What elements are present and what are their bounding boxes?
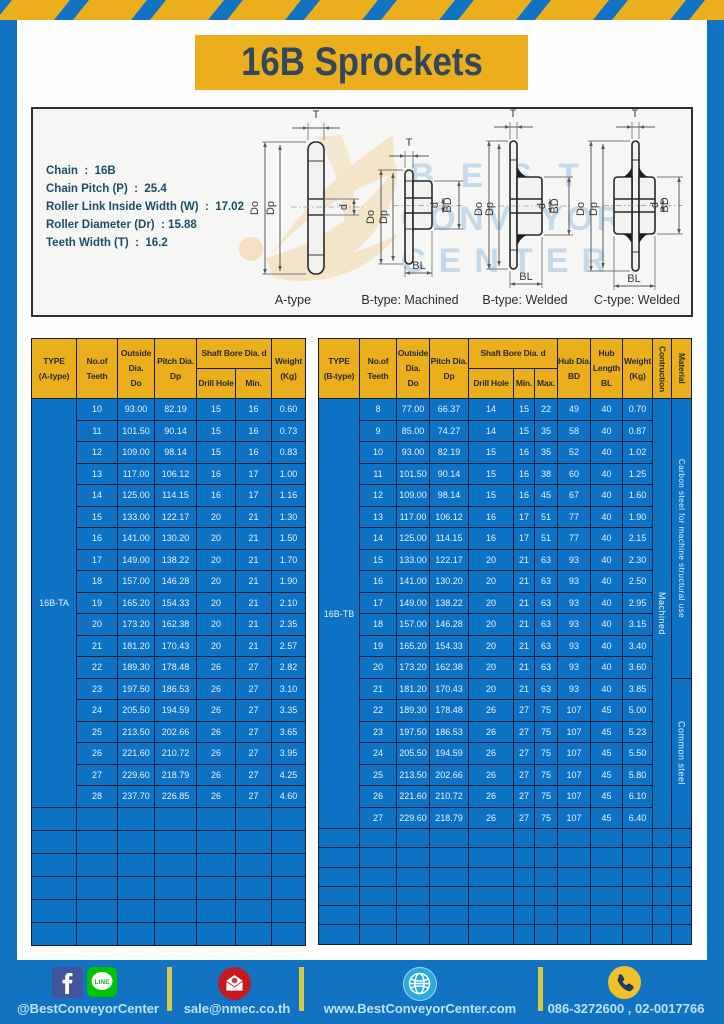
- svg-text:T: T: [313, 109, 320, 121]
- svg-text:Do: Do: [575, 202, 587, 216]
- svg-text:T: T: [510, 109, 517, 120]
- svg-text:Dp: Dp: [378, 210, 390, 224]
- svg-text:Dp: Dp: [588, 202, 600, 216]
- svg-text:BL: BL: [519, 271, 532, 283]
- svg-text:BL: BL: [412, 260, 425, 272]
- svg-text:d: d: [429, 202, 441, 208]
- svg-text:T: T: [406, 137, 413, 149]
- svg-text:d: d: [536, 203, 548, 209]
- svg-text:BD: BD: [549, 198, 561, 213]
- svg-text:BD: BD: [659, 197, 671, 212]
- svg-text:Dp: Dp: [265, 201, 277, 215]
- svg-text:LINE: LINE: [95, 979, 110, 986]
- svg-text:BEST: BEST: [410, 157, 583, 195]
- svg-text:d: d: [338, 204, 350, 210]
- svg-text:C-type: Welded: C-type: Welded: [594, 293, 680, 307]
- svg-text:BD: BD: [442, 197, 454, 212]
- svg-text:Do: Do: [249, 201, 261, 215]
- svg-text:BL: BL: [627, 273, 640, 285]
- svg-text:Dp: Dp: [484, 202, 496, 216]
- svg-text:T: T: [632, 109, 639, 120]
- svg-text:B-type: Welded: B-type: Welded: [482, 293, 567, 307]
- svg-text:Do: Do: [365, 210, 377, 224]
- svg-text:B-type: Machined: B-type: Machined: [361, 293, 458, 307]
- svg-text:A-type: A-type: [275, 293, 311, 307]
